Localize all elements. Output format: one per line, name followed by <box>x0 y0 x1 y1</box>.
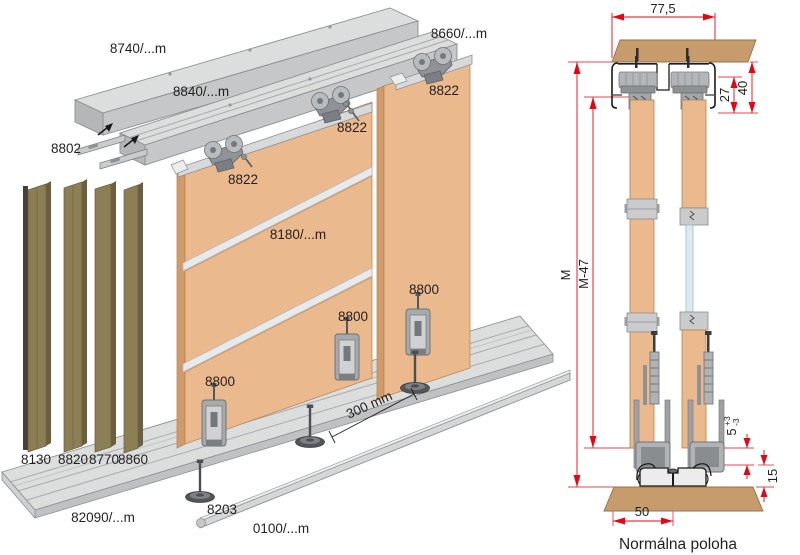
label-bottom-roller-1: 8800 <box>205 374 235 389</box>
exploded-view: 8740/...m 8840/...m 8660/...m 8802 8822 … <box>2 8 570 536</box>
top-board <box>612 40 756 62</box>
label-mounting-bracket: 8802 <box>51 141 81 156</box>
label-bottom-roller-3: 8800 <box>409 282 439 297</box>
vertical-profile-8130 <box>23 181 51 452</box>
label-leveling-foot: 8203 <box>207 502 237 517</box>
dim-door-height: M-47 <box>576 259 591 289</box>
drawing-canvas: 8740/...m 8840/...m 8660/...m 8802 8822 … <box>0 0 800 555</box>
dim-track-width: 77,5 <box>650 1 675 16</box>
label-bottom-track: 82090/...m <box>71 510 135 525</box>
label-top-roller-1: 8822 <box>228 172 258 187</box>
vertical-profile-8820 <box>64 179 87 452</box>
glass-pane <box>686 225 693 312</box>
vertical-profile-8860 <box>124 182 143 453</box>
technical-drawing: 8740/...m 8840/...m 8660/...m 8802 8822 … <box>0 0 800 555</box>
dim-inner-height: 27 <box>717 88 732 102</box>
dim-bottom-gap-group: 5 +3 -3 <box>722 416 741 436</box>
label-top-roller-2: 8822 <box>337 120 367 135</box>
dim-floor-offset: 50 <box>635 504 649 519</box>
label-profile-8860: 8860 <box>118 452 148 467</box>
label-top-cover: 8740/...m <box>110 41 166 56</box>
label-frame-profile: 8180/...m <box>270 227 326 242</box>
dim-opening-height: M <box>558 270 573 281</box>
section-view: 77,5 27 40 M M-47 5 +3 -3 15 50 Normálna… <box>558 1 780 553</box>
vertical-profile-8770 <box>95 181 116 452</box>
bottom-board <box>604 487 763 511</box>
label-top-roller-3: 8822 <box>429 83 459 98</box>
label-double-track: 8840/...m <box>173 84 229 99</box>
label-profile-8820: 8820 <box>58 452 88 467</box>
dim-bottom-gap: 5 <box>724 428 739 435</box>
section-caption: Normálna poloha <box>619 536 737 553</box>
label-guide-rail: 0100/...m <box>253 521 309 536</box>
label-bottom-roller-2: 8800 <box>338 309 368 324</box>
label-profile-8130: 8130 <box>21 452 51 467</box>
dim-total-height: 40 <box>735 81 750 95</box>
label-profile-8770: 8770 <box>89 452 119 467</box>
dim-gap-tol-minus: -3 <box>731 418 741 426</box>
label-single-track: 8660/...m <box>431 26 487 41</box>
dim-track-height: 15 <box>765 469 780 483</box>
